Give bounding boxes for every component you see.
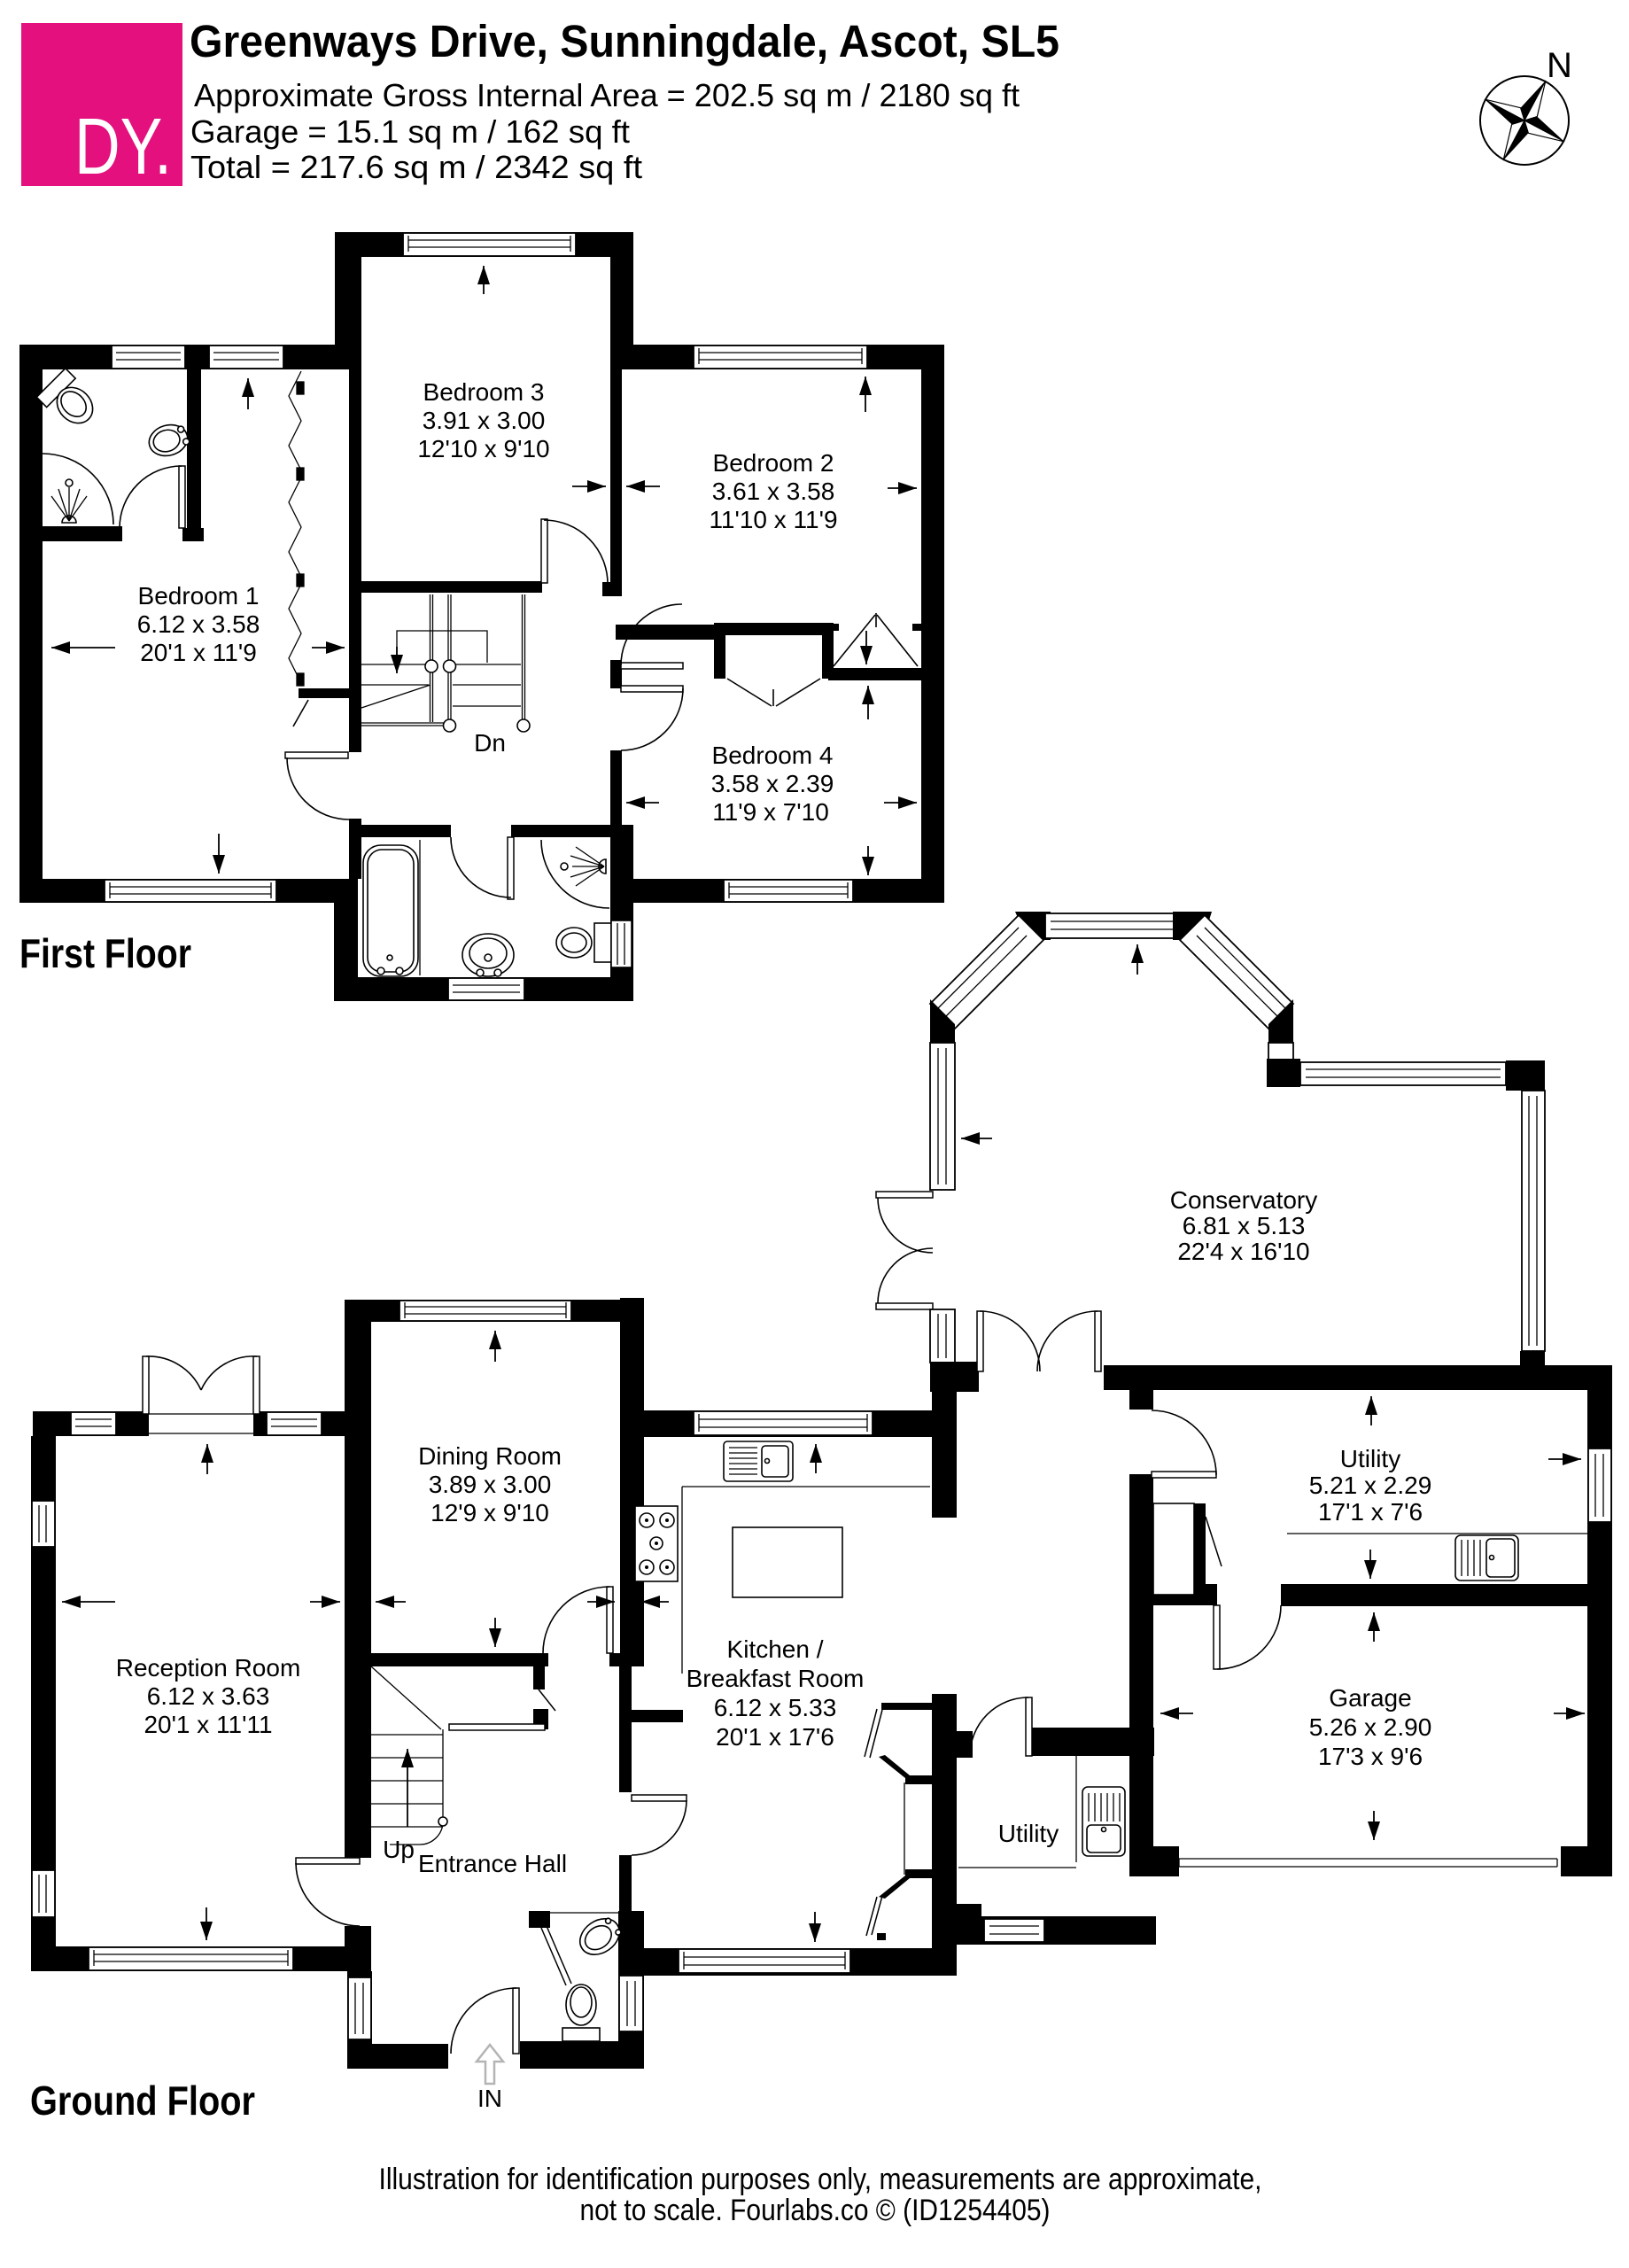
svg-text:Garage = 15.1 sq m / 162 sq ft: Garage = 15.1 sq m / 162 sq ft [190, 113, 630, 150]
svg-text:Kitchen /: Kitchen / [727, 1635, 824, 1663]
svg-text:Bedroom 2: Bedroom 2 [713, 449, 834, 477]
svg-text:11'9 x 7'10: 11'9 x 7'10 [712, 798, 829, 826]
svg-text:3.91 x 3.00: 3.91 x 3.00 [423, 407, 546, 434]
svg-text:12'9 x 9'10: 12'9 x 9'10 [431, 1499, 549, 1526]
svg-text:Dining Room: Dining Room [418, 1442, 562, 1470]
svg-text:22'4 x 16'10: 22'4 x 16'10 [1177, 1238, 1309, 1265]
svg-text:Conservatory: Conservatory [1170, 1186, 1318, 1214]
svg-text:Greenways Drive, Sunningdale,: Greenways Drive, Sunningdale, Ascot, SL5 [190, 16, 1059, 66]
svg-text:Approximate Gross Internal Are: Approximate Gross Internal Area = 202.5 … [194, 77, 1020, 113]
svg-text:5.21 x 2.29: 5.21 x 2.29 [1309, 1472, 1432, 1499]
svg-text:DY.: DY. [74, 103, 172, 191]
svg-text:6.12 x 3.58: 6.12 x 3.58 [137, 610, 260, 638]
svg-text:Bedroom 1: Bedroom 1 [138, 582, 260, 610]
svg-text:17'3 x 9'6: 17'3 x 9'6 [1318, 1743, 1423, 1770]
svg-text:20'1 x 17'6: 20'1 x 17'6 [716, 1723, 834, 1751]
svg-text:20'1 x 11'9: 20'1 x 11'9 [140, 639, 257, 666]
svg-text:12'10 x 9'10: 12'10 x 9'10 [417, 435, 549, 462]
svg-text:Dn: Dn [474, 729, 506, 757]
svg-text:Utility: Utility [998, 1820, 1059, 1847]
svg-text:11'10 x 11'9: 11'10 x 11'9 [709, 506, 837, 533]
svg-text:Entrance Hall: Entrance Hall [418, 1850, 567, 1877]
svg-text:IN: IN [477, 2085, 502, 2112]
svg-text:3.61 x 3.58: 3.61 x 3.58 [712, 478, 835, 505]
svg-text:20'1 x 11'11: 20'1 x 11'11 [144, 1711, 272, 1738]
svg-text:6.81 x 5.13: 6.81 x 5.13 [1183, 1212, 1306, 1239]
svg-text:6.12 x 3.63: 6.12 x 3.63 [147, 1682, 270, 1710]
svg-text:N: N [1547, 46, 1572, 85]
svg-text:3.58 x 2.39: 3.58 x 2.39 [711, 770, 834, 797]
svg-text:Reception Room: Reception Room [116, 1654, 301, 1682]
svg-text:17'1 x 7'6: 17'1 x 7'6 [1318, 1498, 1423, 1526]
svg-text:First Floor: First Floor [19, 930, 191, 976]
svg-text:3.89 x 3.00: 3.89 x 3.00 [429, 1471, 552, 1498]
svg-text:Utility: Utility [1340, 1445, 1400, 1472]
svg-text:5.26 x 2.90: 5.26 x 2.90 [1309, 1713, 1432, 1741]
svg-text:Bedroom 4: Bedroom 4 [712, 742, 834, 769]
svg-text:Up: Up [383, 1836, 415, 1863]
svg-text:Total = 217.6 sq m / 2342 sq f: Total = 217.6 sq m / 2342 sq ft [190, 149, 642, 185]
svg-text:Garage: Garage [1329, 1684, 1411, 1712]
svg-text:Ground Floor: Ground Floor [30, 2078, 255, 2124]
svg-text:Bedroom 3: Bedroom 3 [423, 378, 545, 406]
svg-text:Illustration for identificatio: Illustration for identification purposes… [379, 2163, 1262, 2196]
svg-text:6.12 x 5.33: 6.12 x 5.33 [714, 1694, 837, 1721]
svg-text:Breakfast Room: Breakfast Room [687, 1665, 865, 1692]
svg-text:not to scale. Fourlabs.co © (I: not to scale. Fourlabs.co © (ID1254405) [580, 2194, 1051, 2227]
